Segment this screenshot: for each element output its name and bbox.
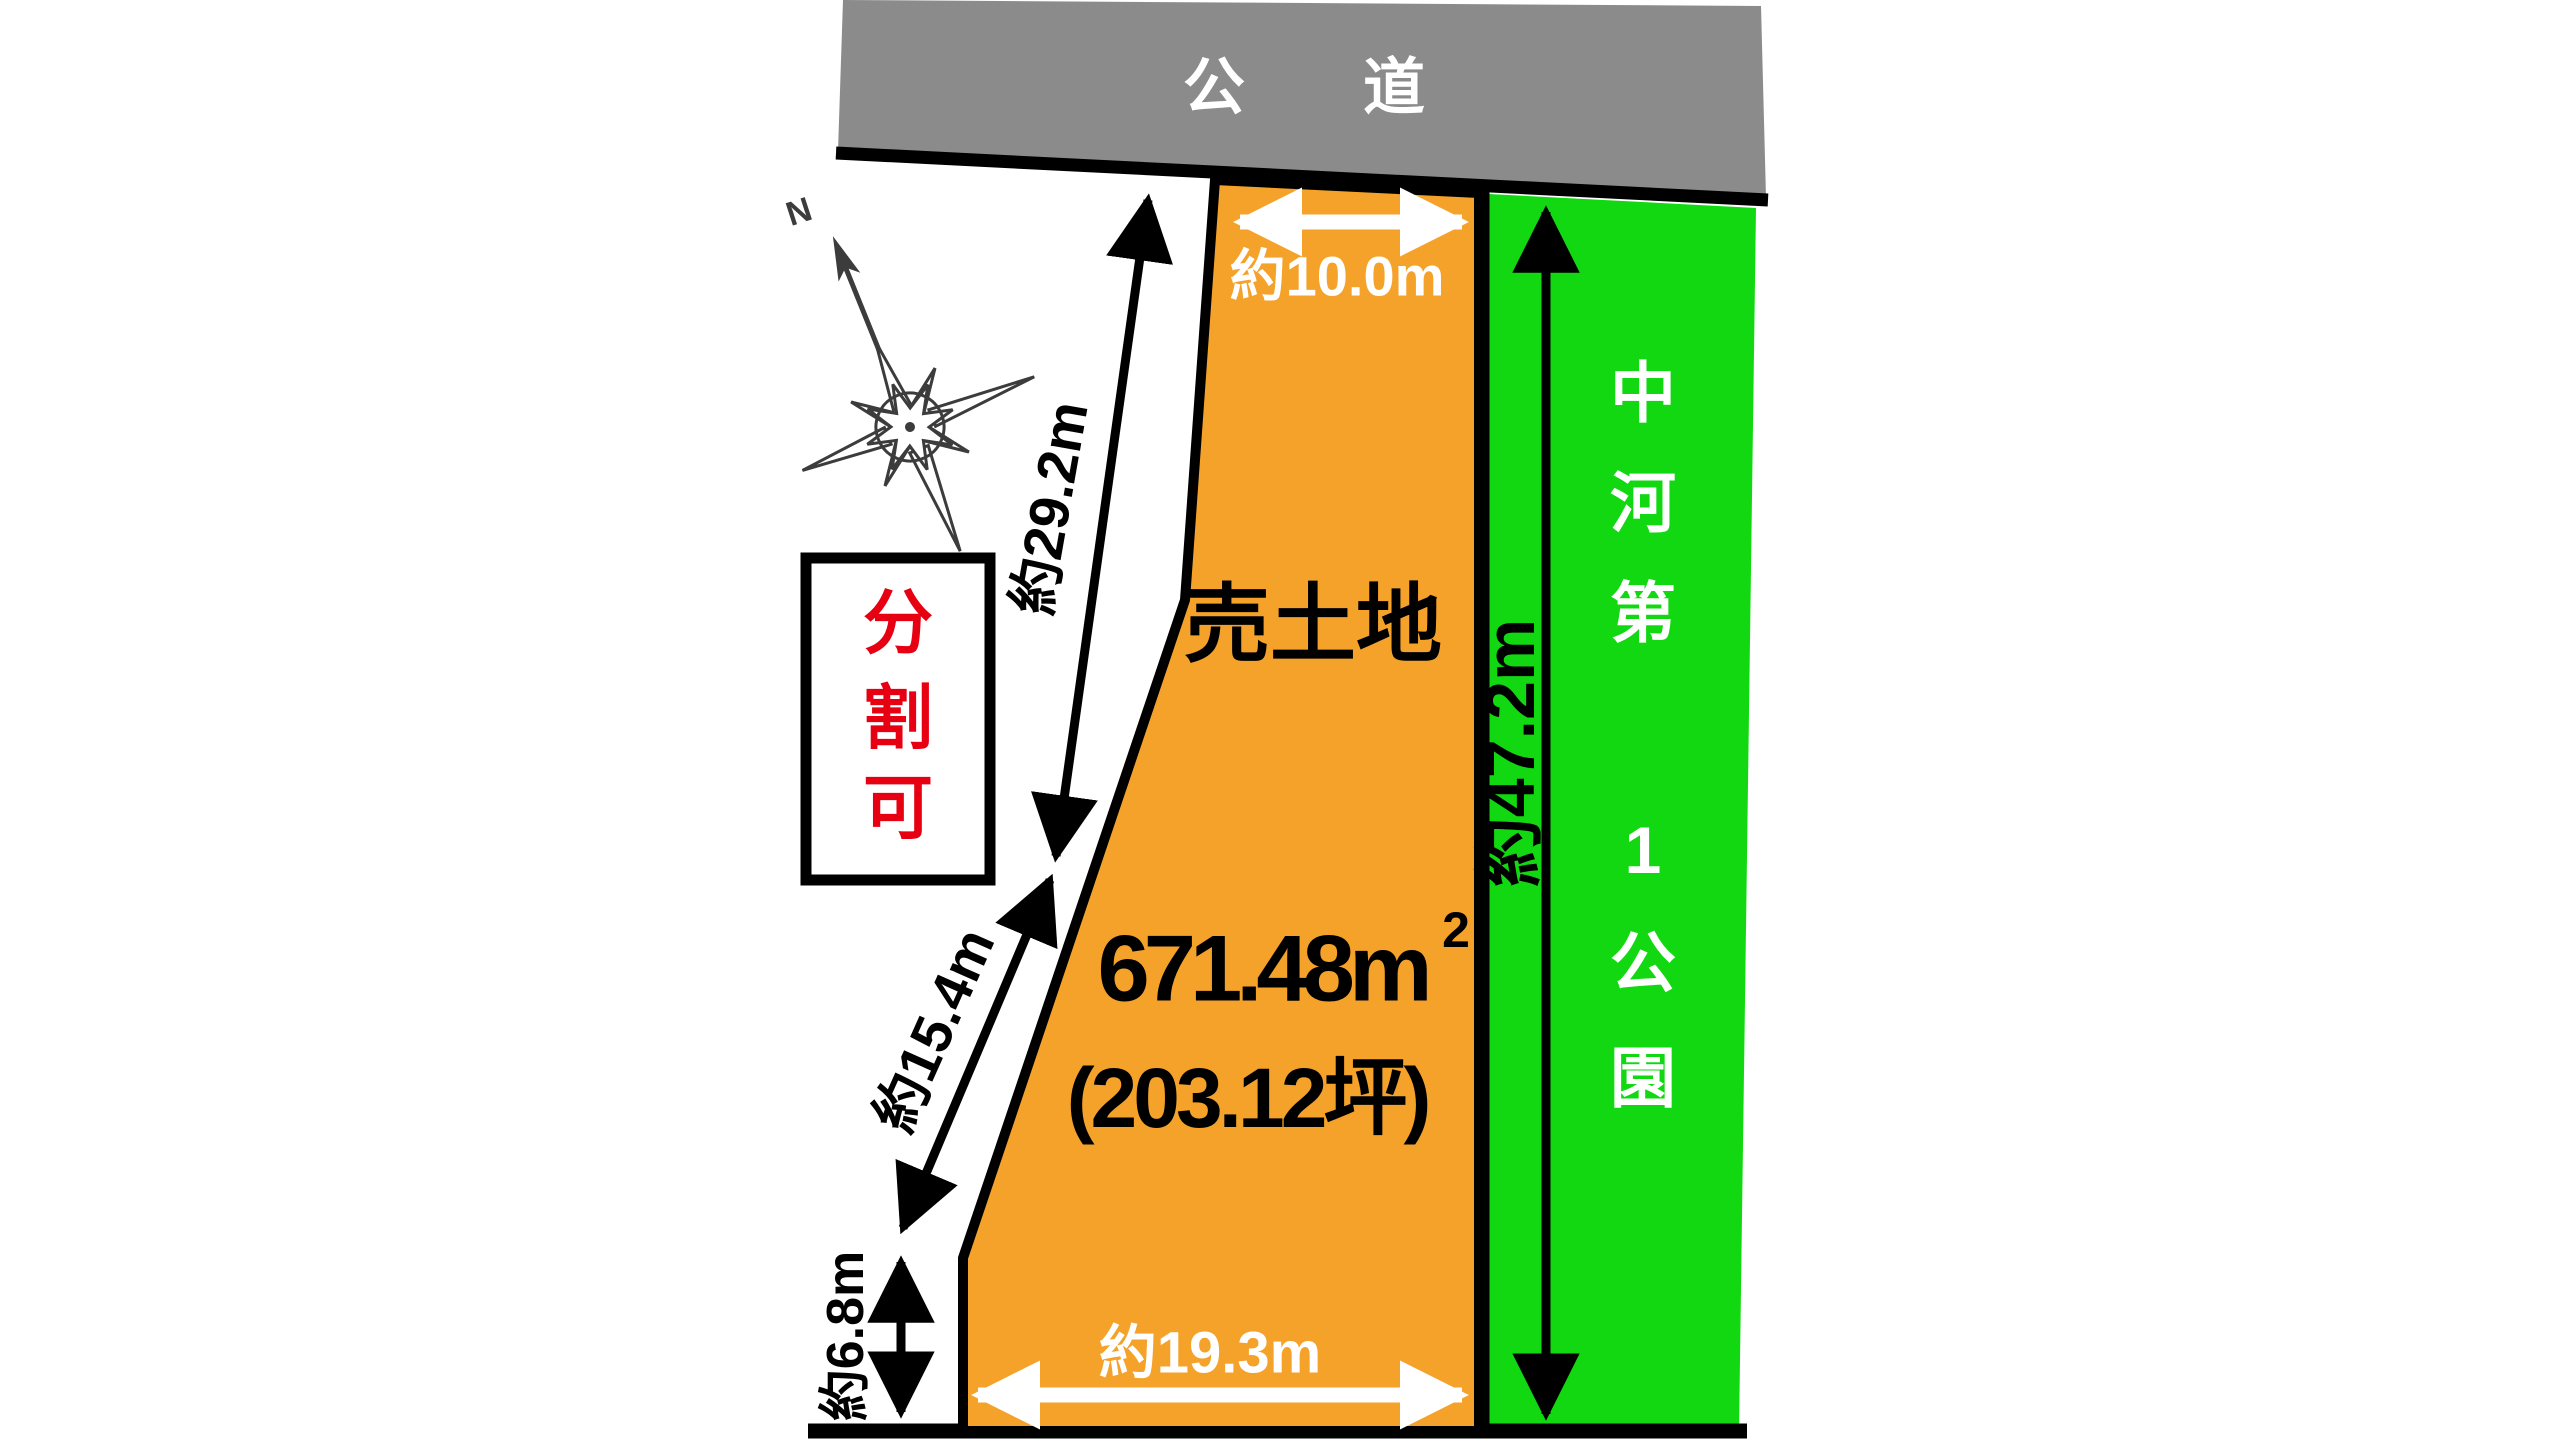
compass-needle-tip [827,238,856,276]
road-label: 公 道 [1183,54,1453,123]
parcel-area-tsubo: (203.12坪) [1067,1051,1428,1145]
parcel-shape [963,180,1479,1431]
park-name-char: 園 [1610,1041,1676,1115]
dimension-left-lower: 約6.8m [817,1251,901,1422]
compass-spike-s [910,446,970,555]
parcel-label: 売土地 [1184,577,1442,673]
dimension-label: 約6.8m [817,1251,875,1422]
dimension-label: 約10.0m [1230,245,1445,308]
parcel-area-superscript: 2 [1442,902,1470,958]
park-name-char: 公 [1610,926,1676,1000]
park-name-char: 第 [1610,576,1676,650]
dimension-label: 約19.3m [1099,1321,1321,1386]
badge-char: 割 [863,679,933,757]
dimension-label: 約47.2m [1471,619,1549,887]
dimension-left-upper: 約29.2m [1000,200,1148,856]
park-name-char: 1 [1625,813,1662,887]
compass-spike-e [929,368,1038,426]
parcel-area: 売土地 671.48m 2 (203.12坪) 約10.0m 約19.3m [963,180,1479,1431]
parcel-area-value: 671.48m [1097,916,1427,1021]
divisible-badge: 分 割 可 [806,558,990,880]
land-plot-diagram: 公 道 中 河 第 1 公 園 売土地 671.48m 2 (203.12坪) … [0,0,2560,1440]
park-name-char: 河 [1610,466,1676,540]
badge-char: 可 [863,769,933,847]
badge-char: 分 [863,584,933,662]
park-name-char: 中 [1610,356,1676,430]
diagram-svg: 公 道 中 河 第 1 公 園 売土地 671.48m 2 (203.12坪) … [0,0,2560,1440]
road-area: 公 道 [836,0,1768,200]
compass-north-label: N [781,190,816,234]
dimension-label: 約29.2m [1000,397,1099,619]
